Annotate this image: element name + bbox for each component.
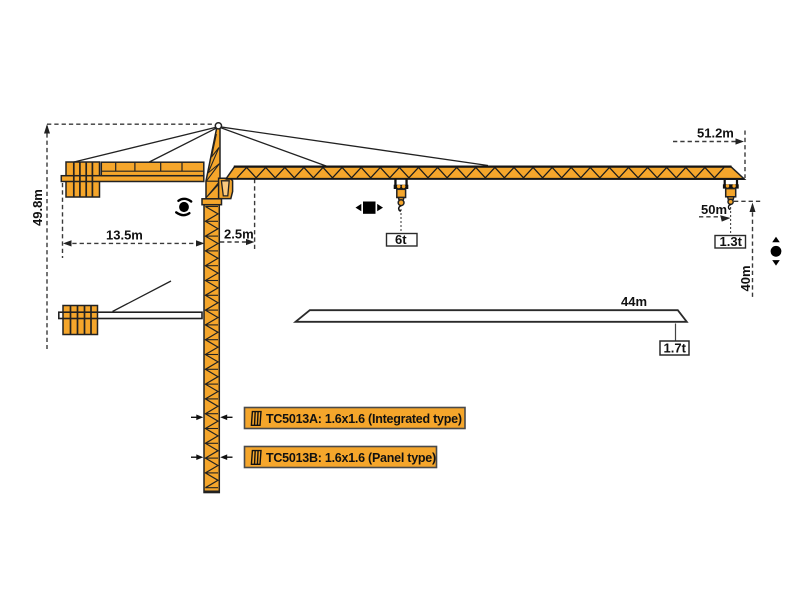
svg-text:51.2m: 51.2m: [697, 126, 734, 141]
svg-text:1.7t: 1.7t: [664, 341, 687, 356]
svg-text:1.3t: 1.3t: [720, 234, 743, 249]
svg-text:13.5m: 13.5m: [106, 228, 143, 243]
svg-text:40m: 40m: [738, 265, 753, 291]
svg-text:2.5m: 2.5m: [224, 227, 254, 242]
svg-text:6t: 6t: [395, 232, 407, 247]
svg-text:TC5013B: 1.6x1.6 (Panel type): TC5013B: 1.6x1.6 (Panel type): [266, 451, 436, 465]
svg-text:50m: 50m: [701, 202, 727, 217]
svg-text:49.8m: 49.8m: [30, 189, 45, 226]
svg-text:44m: 44m: [621, 294, 647, 309]
svg-text:TC5013A: 1.6x1.6 (Integrated: TC5013A: 1.6x1.6 (Integrated type): [266, 412, 462, 426]
